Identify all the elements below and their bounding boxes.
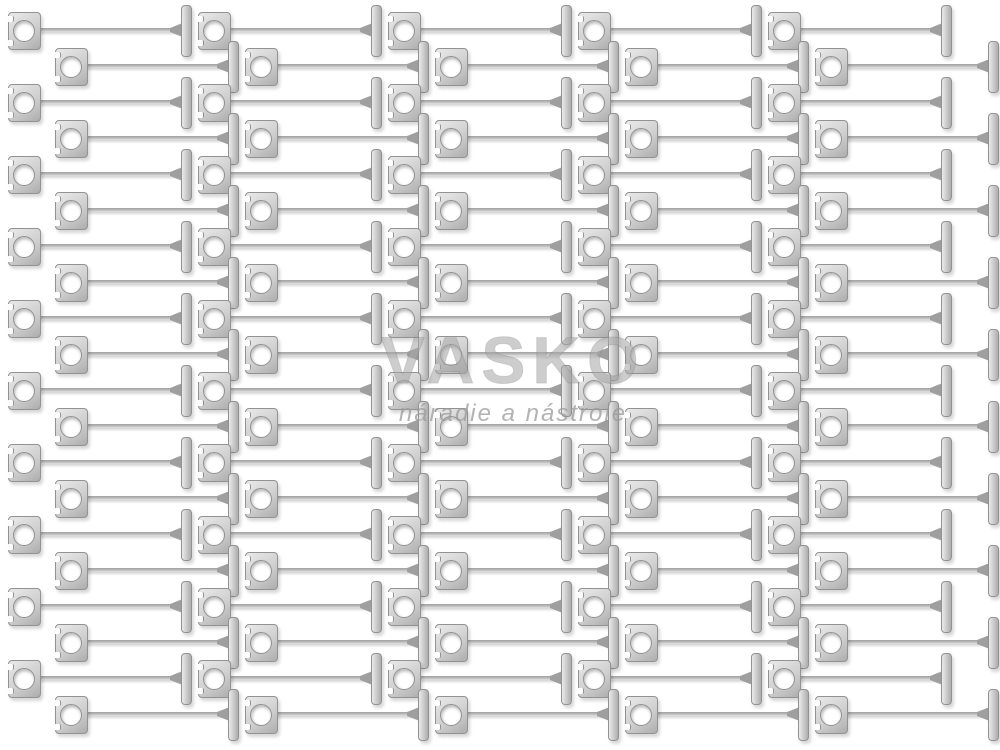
plate-notch [815,268,821,274]
clip-tbar [988,329,999,381]
clip-tbar [418,689,429,741]
plate-notch [578,88,584,94]
plate-notch [8,184,14,190]
clip-tbar [181,365,192,417]
plate-notch [388,400,394,406]
clip-screw-hole [393,308,415,330]
clip-screw-hole [440,344,462,366]
clip-screw-hole [13,164,35,186]
clip-screw-hole [820,488,842,510]
plate-notch [815,628,821,634]
clip-tbar [561,293,572,345]
clip-tbar [561,509,572,561]
clip-screw-hole [773,164,795,186]
clip-stem [464,712,610,716]
plate-notch [198,688,204,694]
clip-screw-hole [60,128,82,150]
clip-screw-hole [440,560,462,582]
clip-screw-hole [250,200,272,222]
plate-notch [435,196,441,202]
plate-notch [768,544,774,550]
plate-notch [388,16,394,22]
clip-tbar [941,581,952,633]
clip-tbar [941,149,952,201]
clip-tbar [561,5,572,57]
clip-stem [274,496,420,500]
plate-notch [435,700,441,706]
clip-screw-hole [203,452,225,474]
clip-stem [37,172,183,176]
clip-stem [417,604,563,608]
clip-screw-hole [60,56,82,78]
plate-notch [388,520,394,526]
clip-screw-hole [250,344,272,366]
clip-screw-hole [630,704,652,726]
clip-tbar [371,5,382,57]
plate-notch [198,520,204,526]
clip-screw-hole [203,596,225,618]
clip-screw-hole [820,632,842,654]
plate-notch [815,556,821,562]
clip-screw-hole [203,308,225,330]
plate-notch [245,628,251,634]
clip-stem [797,100,943,104]
plate-notch [55,724,61,730]
clip-screw-hole [13,524,35,546]
plate-notch [198,40,204,46]
plate-notch [768,112,774,118]
plate-notch [625,268,631,274]
clip-stem [417,244,563,248]
plate-notch [245,124,251,130]
clip-screw-hole [393,164,415,186]
plate-notch [625,52,631,58]
plate-notch [8,616,14,622]
plate-notch [198,184,204,190]
clip-tbar [751,149,762,201]
clip-stem [654,136,800,140]
clip-screw-hole [203,668,225,690]
clip-screw-hole [203,92,225,114]
plate-notch [8,376,14,382]
clip-stem [227,388,373,392]
clip-stem [37,316,183,320]
clip-tbar [228,689,239,741]
clip-stem [797,604,943,608]
plate-notch [388,184,394,190]
clip-stem [84,136,230,140]
clip-screw-hole [203,380,225,402]
clip-screw-hole [203,164,225,186]
clip-screw-hole [440,632,462,654]
plate-notch [768,520,774,526]
clip-screw-hole [250,704,272,726]
plate-notch [55,196,61,202]
clip-stem [84,712,230,716]
plate-notch [435,484,441,490]
clip-tbar [751,293,762,345]
plate-notch [435,436,441,442]
plate-notch [768,88,774,94]
clip-screw-hole [60,200,82,222]
clip-tbar [988,617,999,669]
clip-screw-hole [583,164,605,186]
clip-screw-hole [203,524,225,546]
plate-notch [8,88,14,94]
plate-notch [435,364,441,370]
clip-screw-hole [60,704,82,726]
clip-tbar [988,113,999,165]
clip-stem [654,352,800,356]
plate-notch [435,148,441,154]
clip-stem [84,352,230,356]
clip-screw-hole [820,416,842,438]
clip-tbar [181,221,192,273]
clip-stem [84,568,230,572]
plate-notch [198,160,204,166]
plate-notch [55,508,61,514]
plate-notch [435,556,441,562]
clip-screw-hole [440,488,462,510]
plate-notch [55,364,61,370]
plate-notch [245,700,251,706]
clip-screw-hole [393,380,415,402]
plate-notch [768,184,774,190]
clip-stem [227,316,373,320]
clip-screw-hole [440,416,462,438]
plate-notch [815,340,821,346]
plate-notch [8,256,14,262]
plate-notch [388,592,394,598]
clip-screw-hole [13,452,35,474]
clip-screw-hole [820,272,842,294]
plate-notch [8,664,14,670]
plate-notch [815,484,821,490]
clip-stem [844,496,990,500]
clip-stem [37,604,183,608]
plate-notch [8,232,14,238]
clip-screw-hole [583,380,605,402]
plate-notch [578,400,584,406]
clip-screw-hole [13,668,35,690]
clip-stem [464,280,610,284]
plate-notch [578,520,584,526]
clip-stem [844,64,990,68]
plate-notch [198,16,204,22]
clip-stem [654,208,800,212]
clip-stem [227,244,373,248]
plate-notch [8,448,14,454]
plate-notch [625,340,631,346]
plate-notch [388,688,394,694]
clip-stem [274,640,420,644]
clip-screw-hole [60,344,82,366]
plate-notch [8,16,14,22]
plate-notch [245,292,251,298]
clip-screw-hole [60,488,82,510]
clip-stem [417,316,563,320]
clip-stem [797,388,943,392]
plate-notch [578,256,584,262]
plate-notch [625,292,631,298]
clip-stem [37,100,183,104]
clip-screw-hole [630,200,652,222]
clip-tbar [181,77,192,129]
plate-notch [55,76,61,82]
plate-notch [625,628,631,634]
plate-notch [625,580,631,586]
clip-screw-hole [630,128,652,150]
clip-stem [274,280,420,284]
clip-tbar [751,365,762,417]
clip-stem [797,460,943,464]
clip-stem [844,568,990,572]
clip-stem [607,100,753,104]
clip-stem [227,28,373,32]
plate-notch [435,724,441,730]
clip-tbar [988,545,999,597]
plate-notch [625,364,631,370]
plate-notch [245,412,251,418]
clip-tbar [751,581,762,633]
clip-screw-hole [583,668,605,690]
plate-notch [578,472,584,478]
clip-stem [84,424,230,428]
clip-screw-hole [583,308,605,330]
plate-notch [245,556,251,562]
plate-notch [55,340,61,346]
clip-tbar [988,401,999,453]
clip-tbar [561,437,572,489]
clip-tbar [941,293,952,345]
clip-tbar [181,437,192,489]
clip-tbar [371,509,382,561]
clip-stem [607,388,753,392]
clip-stem [417,460,563,464]
plate-notch [55,412,61,418]
plate-notch [388,232,394,238]
plate-notch [388,112,394,118]
clip-screw-hole [250,128,272,150]
clip-screw-hole [440,56,462,78]
plate-notch [388,160,394,166]
plate-notch [815,52,821,58]
plate-notch [245,52,251,58]
plate-notch [815,292,821,298]
product-photo: VASKO náradie a nástroje [0,0,1000,750]
plate-notch [578,664,584,670]
clip-screw-hole [60,560,82,582]
clip-stem [654,64,800,68]
plate-notch [768,256,774,262]
plate-notch [8,472,14,478]
plate-notch [768,472,774,478]
clip-tbar [371,149,382,201]
plate-notch [578,160,584,166]
plate-notch [198,472,204,478]
plate-notch [435,508,441,514]
clip-tbar [371,221,382,273]
plate-notch [245,340,251,346]
plate-notch [768,40,774,46]
plate-notch [815,220,821,226]
clip-screw-hole [250,632,272,654]
clip-stem [654,640,800,644]
plate-notch [768,664,774,670]
clip-screw-hole [393,20,415,42]
clip-screw-hole [440,704,462,726]
clip-screw-hole [583,236,605,258]
plate-notch [245,220,251,226]
clip-screw-hole [583,524,605,546]
clip-stem [607,316,753,320]
plate-notch [8,160,14,166]
clip-tbar [941,77,952,129]
clip-screw-hole [13,92,35,114]
clip-stem [607,28,753,32]
clip-screw-hole [393,452,415,474]
clip-screw-hole [773,668,795,690]
plate-notch [578,112,584,118]
clip-tbar [561,653,572,705]
plate-notch [8,400,14,406]
plate-notch [198,664,204,670]
clip-screw-hole [13,20,35,42]
plate-notch [198,616,204,622]
plate-notch [198,112,204,118]
clip-stem [464,208,610,212]
plate-notch [625,484,631,490]
clip-tbar [561,581,572,633]
clip-screw-hole [393,668,415,690]
clip-stem [654,280,800,284]
clip-stem [227,532,373,536]
clip-stem [274,712,420,716]
clip-tbar [941,437,952,489]
clip-stem [607,460,753,464]
plate-notch [578,616,584,622]
clip-stem [274,208,420,212]
plate-notch [578,40,584,46]
plate-notch [245,724,251,730]
clip-tbar [561,365,572,417]
plate-notch [578,544,584,550]
clip-screw-hole [630,272,652,294]
clip-screw-hole [630,488,652,510]
clip-stem [417,532,563,536]
clip-stem [84,64,230,68]
clip-stem [797,172,943,176]
clip-stem [844,280,990,284]
plate-notch [578,16,584,22]
clip-stem [227,460,373,464]
plate-notch [435,76,441,82]
clip-tbar [371,437,382,489]
plate-notch [245,268,251,274]
plate-notch [815,196,821,202]
clip-tbar [371,293,382,345]
clip-tbar [941,365,952,417]
clip-screw-hole [13,236,35,258]
plate-notch [768,448,774,454]
clip-stem [797,28,943,32]
plate-notch [625,124,631,130]
clip-stem [37,244,183,248]
plate-notch [55,436,61,442]
plate-notch [435,652,441,658]
plate-notch [768,592,774,598]
clip-stem [417,676,563,680]
clip-stem [227,604,373,608]
plate-notch [8,520,14,526]
clip-tbar [988,185,999,237]
clip-screw-hole [630,560,652,582]
plate-notch [388,88,394,94]
plate-notch [245,76,251,82]
plate-notch [815,76,821,82]
fastener-grid [0,0,1000,750]
plate-notch [625,652,631,658]
clip-tbar [988,257,999,309]
clip-tbar [798,689,809,741]
plate-notch [245,484,251,490]
clip-stem [274,64,420,68]
plate-notch [578,184,584,190]
clip-screw-hole [583,20,605,42]
plate-notch [768,400,774,406]
clip-stem [84,208,230,212]
plate-notch [815,724,821,730]
clip-stem [844,424,990,428]
clip-tbar [561,77,572,129]
plate-notch [245,580,251,586]
clip-screw-hole [820,704,842,726]
clip-screw-hole [250,488,272,510]
clip-screw-hole [773,524,795,546]
plate-notch [8,40,14,46]
plate-notch [8,112,14,118]
clip-stem [844,208,990,212]
clip-screw-hole [583,92,605,114]
clip-screw-hole [583,452,605,474]
clip-stem [464,136,610,140]
plate-notch [578,304,584,310]
clip-stem [84,640,230,644]
plate-notch [245,196,251,202]
clip-tbar [371,77,382,129]
plate-notch [578,592,584,598]
plate-notch [578,328,584,334]
clip-screw-hole [820,128,842,150]
clip-screw-hole [203,236,225,258]
plate-notch [8,688,14,694]
clip-stem [607,604,753,608]
clip-tbar [371,581,382,633]
clip-tbar [181,509,192,561]
plate-notch [198,232,204,238]
plate-notch [768,688,774,694]
clip-screw-hole [393,92,415,114]
clip-tbar [988,473,999,525]
clip-tbar [751,509,762,561]
clip-stem [227,100,373,104]
clip-screw-hole [393,596,415,618]
plate-notch [815,124,821,130]
clip-stem [37,532,183,536]
clip-stem [417,28,563,32]
plate-notch [625,76,631,82]
clip-screw-hole [13,380,35,402]
